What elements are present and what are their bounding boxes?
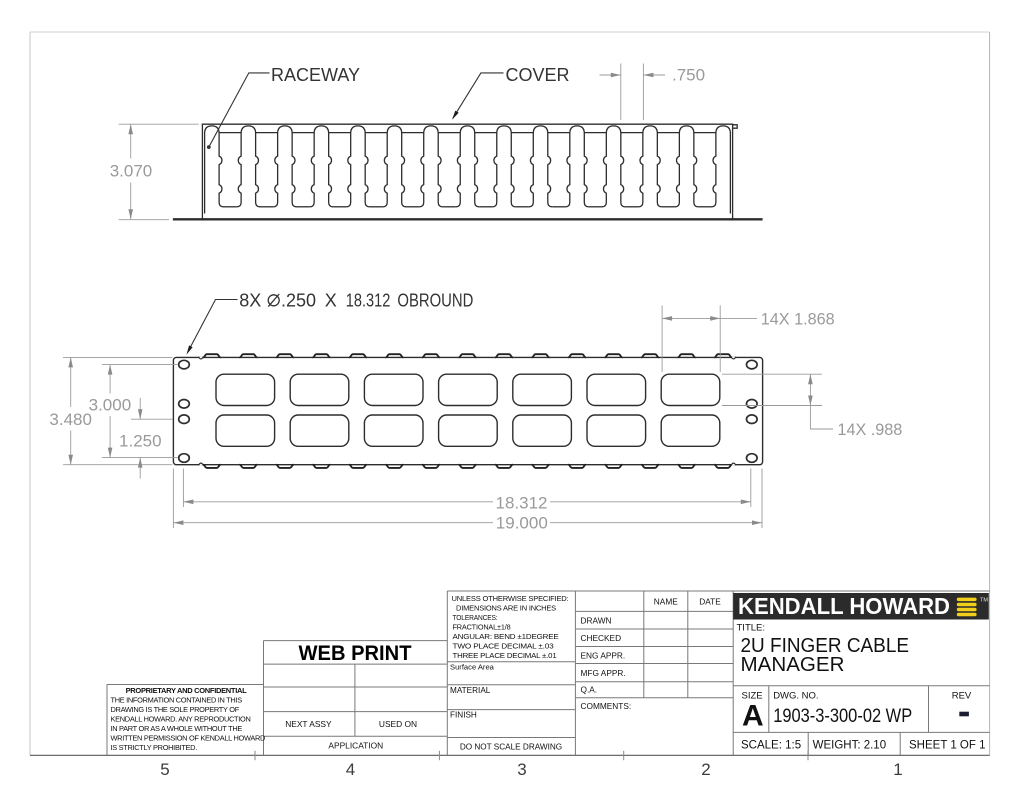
svg-text:TWO PLACE DECIMAL ±.03: TWO PLACE DECIMAL ±.03: [453, 642, 554, 651]
svg-text:18.312: 18.312: [496, 494, 548, 513]
svg-text:ENG APPR.: ENG APPR.: [581, 651, 626, 661]
svg-text:COVER: COVER: [506, 65, 570, 85]
svg-text:DRAWING IS THE SOLE PROPERTY O: DRAWING IS THE SOLE PROPERTY OF: [111, 705, 240, 714]
svg-text:MANAGER: MANAGER: [741, 654, 845, 676]
svg-text:WEIGHT: 2.10: WEIGHT: 2.10: [813, 740, 887, 752]
svg-text:MFG APPR.: MFG APPR.: [581, 668, 626, 678]
svg-text:MATERIAL: MATERIAL: [450, 686, 491, 695]
svg-text:COMMENTS:: COMMENTS:: [581, 701, 632, 711]
svg-text:A: A: [742, 699, 764, 732]
svg-text:1903-3-300-02 WP: 1903-3-300-02 WP: [773, 706, 912, 727]
svg-text:X: X: [325, 291, 337, 311]
svg-text:2: 2: [701, 760, 710, 779]
svg-text:3.070: 3.070: [110, 161, 153, 180]
svg-text:14X 1.868: 14X 1.868: [761, 311, 835, 329]
svg-text:DWG. NO.: DWG. NO.: [773, 691, 818, 702]
svg-text:ANGULAR: BEND ±1DEGREE: ANGULAR: BEND ±1DEGREE: [453, 632, 559, 641]
svg-text:THE INFORMATION CONTAINED IN T: THE INFORMATION CONTAINED IN THIS: [111, 695, 243, 704]
svg-text:Q.A.: Q.A.: [581, 685, 598, 695]
svg-text:IN PART OR AS A WHOLE WITHOUT: IN PART OR AS A WHOLE WITHOUT THE: [111, 724, 243, 733]
svg-text:8X: 8X: [239, 291, 261, 311]
svg-text:NEXT ASSY: NEXT ASSY: [285, 719, 332, 729]
svg-text:18.312: 18.312: [346, 291, 391, 311]
svg-text:SHEET 1 OF 1: SHEET 1 OF 1: [909, 740, 985, 752]
svg-text:USED ON: USED ON: [379, 719, 417, 729]
svg-text:DRAWN: DRAWN: [581, 616, 612, 626]
svg-text:KENDALL HOWARD. ANY REPRODUCT: KENDALL HOWARD. ANY REPRODUCTION: [111, 714, 251, 723]
svg-text:14X .988: 14X .988: [838, 421, 903, 439]
svg-text:19.000: 19.000: [496, 514, 548, 533]
svg-text:WEB PRINT: WEB PRINT: [299, 642, 412, 665]
svg-text:DATE: DATE: [699, 597, 721, 607]
svg-text:.250: .250: [281, 291, 316, 311]
svg-text:OBROUND: OBROUND: [397, 291, 473, 311]
svg-text:Surface Area: Surface Area: [450, 663, 495, 672]
svg-text:.750: .750: [672, 66, 705, 85]
svg-text:UNLESS OTHERWISE SPECIFIED:: UNLESS OTHERWISE SPECIFIED:: [452, 594, 569, 603]
svg-text:RACEWAY: RACEWAY: [271, 65, 360, 85]
svg-text:3.000: 3.000: [89, 395, 132, 414]
svg-text:DIMENSIONS ARE IN INCHES: DIMENSIONS ARE IN INCHES: [456, 604, 556, 613]
svg-text:4: 4: [346, 760, 355, 779]
svg-text:1.250: 1.250: [119, 432, 162, 451]
svg-text:IS STRICTLY PROHIBITED.: IS STRICTLY PROHIBITED.: [111, 743, 198, 752]
svg-text:3: 3: [517, 760, 526, 779]
svg-text:TOLERANCES:: TOLERANCES:: [453, 613, 498, 622]
svg-text:TITLE:: TITLE:: [737, 623, 766, 634]
svg-text:FRACTIONAL±1/8: FRACTIONAL±1/8: [453, 623, 511, 632]
svg-text:APPLICATION: APPLICATION: [328, 741, 383, 751]
svg-text:THREE PLACE DECIMAL ±.01: THREE PLACE DECIMAL ±.01: [453, 651, 557, 660]
svg-text:REV: REV: [952, 691, 972, 702]
svg-text:3.480: 3.480: [49, 410, 92, 429]
svg-text:TM: TM: [980, 598, 988, 604]
svg-text:PROPRIETARY AND CONFIDENTIAL: PROPRIETARY AND CONFIDENTIAL: [126, 686, 247, 695]
svg-text:FINISH: FINISH: [450, 711, 477, 720]
svg-text:NAME: NAME: [654, 597, 678, 607]
svg-text:1: 1: [893, 760, 902, 779]
svg-text:SCALE: 1:5: SCALE: 1:5: [741, 740, 801, 752]
svg-text:5: 5: [160, 760, 169, 779]
svg-text:WRITTEN PERMISSION OF KENDALL: WRITTEN PERMISSION OF KENDALL HOWARD: [111, 733, 266, 742]
svg-text:DO NOT SCALE DRAWING: DO NOT SCALE DRAWING: [460, 743, 562, 752]
svg-text:CHECKED: CHECKED: [581, 633, 622, 643]
svg-text:KENDALL HOWARD: KENDALL HOWARD: [738, 593, 950, 619]
